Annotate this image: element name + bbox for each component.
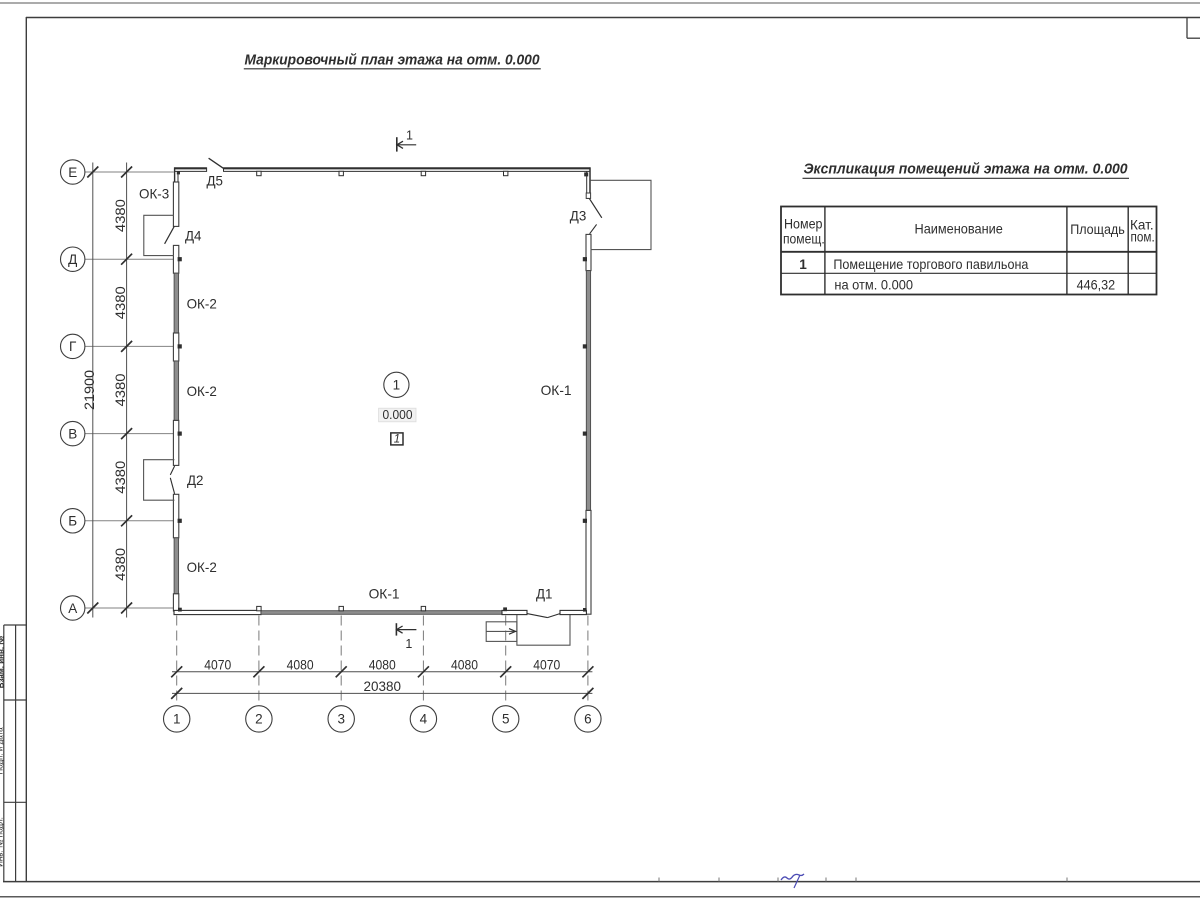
svg-text:4080: 4080: [287, 658, 314, 673]
svg-text:4380: 4380: [113, 374, 128, 407]
svg-text:4: 4: [420, 712, 428, 727]
svg-text:Наименование: Наименование: [915, 222, 1003, 237]
svg-text:Е: Е: [68, 165, 77, 180]
svg-text:0.000: 0.000: [383, 407, 413, 422]
svg-text:4380: 4380: [113, 548, 128, 581]
svg-text:Инв. № подл.: Инв. № подл.: [0, 817, 5, 867]
svg-text:Взам. инв. №: Взам. инв. №: [0, 636, 5, 689]
svg-text:Д4: Д4: [185, 228, 202, 244]
svg-text:ОК-3: ОК-3: [139, 186, 169, 202]
svg-text:Д1: Д1: [536, 586, 553, 602]
svg-text:Д3: Д3: [570, 208, 587, 224]
svg-text:Маркировочный план этажа на от: Маркировочный план этажа на отм. 0.000: [245, 52, 541, 69]
svg-text:1: 1: [799, 257, 807, 272]
svg-text:20380: 20380: [364, 679, 402, 694]
svg-text:Г: Г: [69, 339, 77, 354]
svg-text:446,32: 446,32: [1077, 277, 1116, 292]
svg-text:4070: 4070: [533, 658, 560, 673]
svg-text:1: 1: [406, 129, 413, 143]
svg-text:Номер: Номер: [784, 217, 823, 232]
svg-text:4070: 4070: [204, 658, 231, 673]
svg-text:Д2: Д2: [187, 472, 204, 488]
svg-text:4380: 4380: [113, 461, 128, 494]
svg-text:ОК-2: ОК-2: [187, 295, 217, 311]
svg-text:Экспликация помещений этажа на: Экспликация помещений этажа на отм. 0.00…: [804, 160, 1129, 177]
svg-text:1: 1: [394, 433, 400, 445]
svg-text:4080: 4080: [369, 658, 396, 673]
svg-text:1: 1: [393, 378, 401, 393]
svg-text:4380: 4380: [113, 286, 128, 319]
svg-text:А: А: [68, 601, 77, 616]
svg-text:21900: 21900: [82, 370, 97, 410]
svg-text:В: В: [68, 426, 77, 441]
svg-text:2: 2: [255, 712, 263, 727]
svg-text:Подп. и дата: Подп. и дата: [0, 727, 5, 775]
svg-text:1: 1: [173, 712, 181, 727]
svg-text:Д5: Д5: [207, 173, 224, 189]
svg-text:Б: Б: [68, 514, 77, 529]
svg-text:ОК-2: ОК-2: [187, 383, 217, 399]
svg-text:ОК-1: ОК-1: [369, 586, 400, 602]
svg-text:4380: 4380: [113, 199, 128, 232]
svg-text:ОК-1: ОК-1: [541, 382, 572, 398]
svg-text:6: 6: [584, 712, 592, 727]
svg-text:3: 3: [337, 712, 345, 727]
svg-text:Площадь: Площадь: [1070, 222, 1125, 237]
svg-text:Д: Д: [68, 252, 77, 267]
svg-text:помещ.: помещ.: [783, 231, 825, 246]
svg-text:Помещение торгового павильона: Помещение торгового павильона: [833, 257, 1028, 272]
svg-text:5: 5: [502, 712, 510, 727]
svg-text:на отм. 0.000: на отм. 0.000: [834, 278, 913, 293]
svg-text:4080: 4080: [451, 658, 478, 673]
svg-text:1: 1: [405, 637, 412, 651]
svg-text:пом.: пом.: [1131, 230, 1155, 245]
svg-text:ОК-2: ОК-2: [187, 559, 217, 575]
